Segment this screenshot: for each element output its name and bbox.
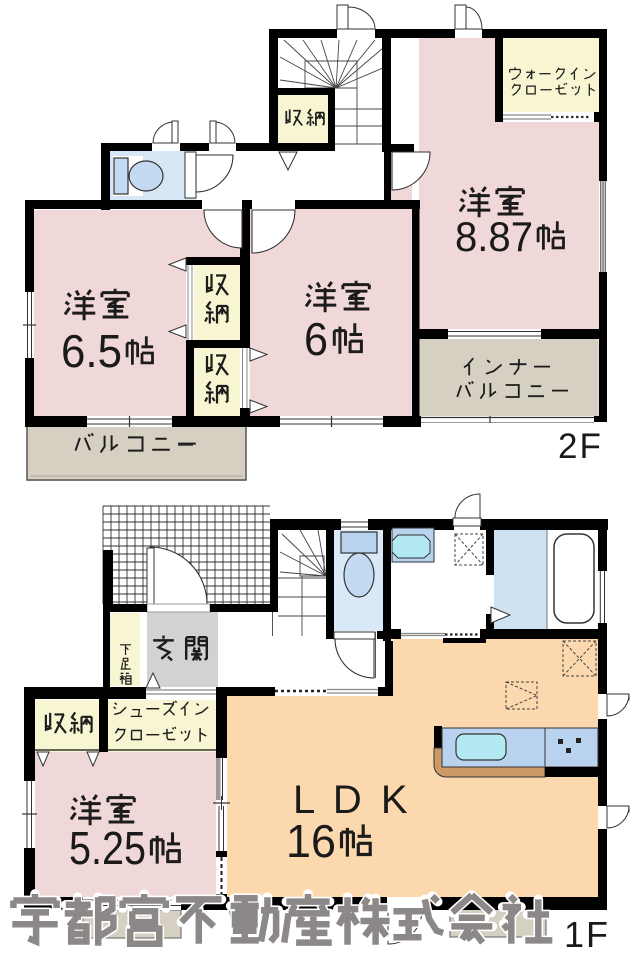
svg-text:8.87: 8.87 [455,213,533,260]
svg-text:ュ: ュ [128,704,144,721]
svg-text:6.5: 6.5 [61,325,122,377]
svg-text:1F: 1F [564,914,610,955]
svg-text:16: 16 [286,815,336,867]
svg-text:5.25: 5.25 [69,822,146,874]
svg-text:6: 6 [304,313,328,365]
svg-text:2F: 2F [558,427,603,466]
